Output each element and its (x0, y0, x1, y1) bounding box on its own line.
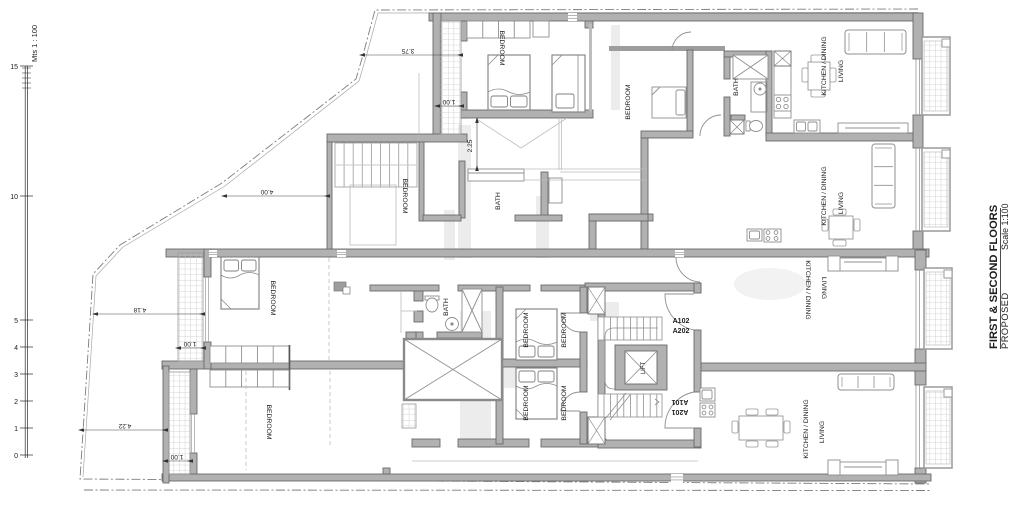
svg-text:Mts 1 : 100: Mts 1 : 100 (30, 25, 39, 62)
svg-text:BEDROOM: BEDROOM (561, 312, 568, 347)
svg-text:BATH: BATH (495, 192, 502, 210)
svg-text:KITCHEN / DINING: KITCHEN / DINING (821, 166, 828, 225)
svg-text:BEDROOM: BEDROOM (269, 280, 276, 315)
svg-text:KITCHEN / DINING: KITCHEN / DINING (804, 260, 811, 319)
svg-text:1.00: 1.00 (183, 340, 196, 347)
svg-text:15: 15 (10, 64, 18, 71)
svg-text:BEDROOM: BEDROOM (523, 312, 530, 347)
svg-text:3: 3 (14, 372, 18, 379)
svg-text:KITCHEN / DINING: KITCHEN / DINING (803, 399, 810, 458)
svg-text:BEDROOM: BEDROOM (625, 84, 632, 119)
svg-text:2.25: 2.25 (467, 139, 474, 152)
svg-text:BEDROOM: BEDROOM (561, 385, 568, 420)
svg-text:KITCHEN / DINING: KITCHEN / DINING (821, 36, 828, 95)
svg-text:FIRST & SECOND FLOORS: FIRST & SECOND FLOORS (988, 204, 1000, 349)
svg-text:BEDROOM: BEDROOM (523, 385, 530, 420)
svg-text:BEDROOM: BEDROOM (401, 178, 408, 213)
svg-text:BATH: BATH (443, 298, 450, 316)
svg-text:LIVING: LIVING (838, 192, 845, 214)
svg-text:2: 2 (14, 399, 18, 406)
svg-text:4.18: 4.18 (133, 306, 146, 313)
svg-text:A102: A102 (673, 318, 690, 325)
svg-text:BATH: BATH (733, 78, 740, 96)
svg-text:PROPOSED: PROPOSED (1000, 292, 1010, 349)
svg-text:Scale 1:100: Scale 1:100 (1000, 203, 1010, 250)
svg-text:A202: A202 (673, 328, 690, 335)
svg-text:A101: A101 (672, 398, 689, 405)
svg-text:3.75: 3.75 (401, 47, 414, 54)
svg-text:1.00: 1.00 (442, 98, 455, 105)
svg-text:LIFT: LIFT (641, 362, 647, 375)
svg-text:BEDROOM: BEDROOM (498, 30, 505, 65)
svg-text:1.00: 1.00 (170, 453, 183, 460)
svg-text:4.22: 4.22 (118, 422, 131, 429)
svg-text:1: 1 (14, 426, 18, 433)
svg-text:0: 0 (14, 453, 18, 460)
svg-text:4.00: 4.00 (260, 188, 273, 195)
svg-text:10: 10 (10, 194, 18, 201)
svg-text:LIVING: LIVING (820, 277, 827, 299)
svg-text:LIVING: LIVING (819, 421, 826, 443)
svg-text:BEDROOM: BEDROOM (265, 404, 272, 439)
svg-text:5: 5 (14, 318, 18, 325)
svg-text:4: 4 (14, 345, 18, 352)
svg-text:LIVING: LIVING (838, 60, 845, 82)
svg-text:A201: A201 (672, 408, 689, 415)
